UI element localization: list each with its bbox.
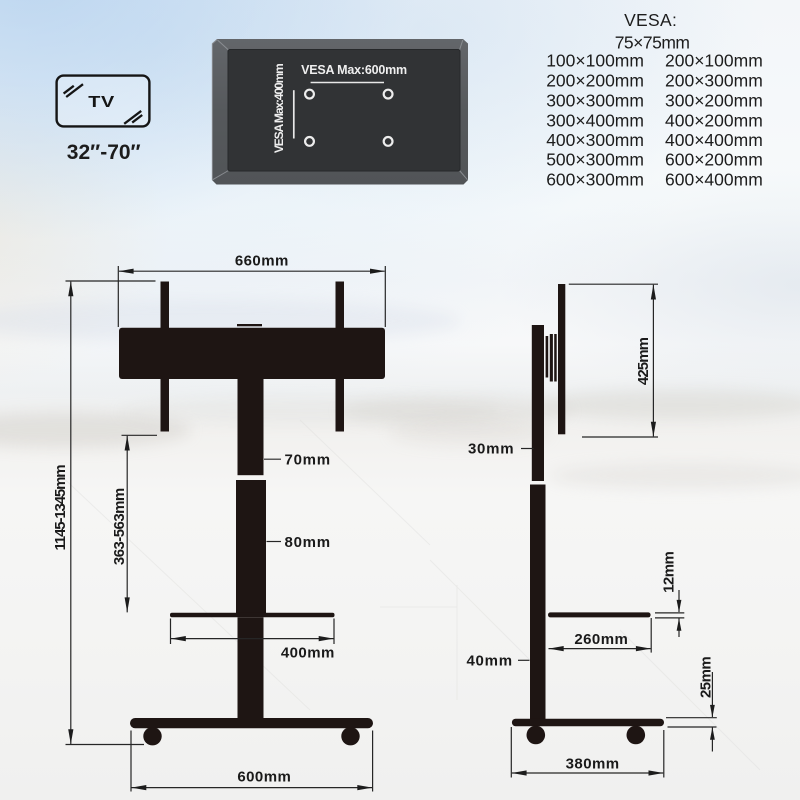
svg-text:80mm: 80mm — [285, 534, 331, 551]
svg-text:380mm: 380mm — [566, 756, 620, 773]
svg-text:400×200mm: 400×200mm — [665, 110, 763, 130]
svg-text:260mm: 260mm — [574, 631, 628, 648]
svg-text:100×100mm: 100×100mm — [546, 51, 644, 71]
svg-text:500×300mm: 500×300mm — [546, 150, 644, 170]
svg-text:400×300mm: 400×300mm — [546, 130, 644, 150]
svg-text:425mm: 425mm — [635, 337, 652, 385]
svg-text:1145-1345mm: 1145-1345mm — [52, 465, 69, 551]
svg-text:300×200mm: 300×200mm — [665, 91, 763, 111]
svg-text:VESA Max:600mm: VESA Max:600mm — [301, 63, 407, 77]
svg-text:363-563mm: 363-563mm — [111, 488, 128, 565]
svg-text:200×300mm: 200×300mm — [665, 71, 763, 91]
svg-text:TV: TV — [88, 93, 115, 111]
svg-text:70mm: 70mm — [285, 451, 331, 468]
svg-text:200×200mm: 200×200mm — [546, 71, 644, 91]
svg-text:VESA Max:400mm: VESA Max:400mm — [272, 64, 286, 153]
svg-text:660mm: 660mm — [235, 253, 289, 270]
svg-text:VESA:: VESA: — [624, 10, 677, 30]
svg-text:600×300mm: 600×300mm — [546, 170, 644, 190]
svg-text:75×75mm: 75×75mm — [615, 33, 690, 53]
svg-text:600×400mm: 600×400mm — [665, 170, 763, 190]
svg-text:400mm: 400mm — [281, 644, 335, 661]
svg-text:600×200mm: 600×200mm — [665, 150, 763, 170]
svg-text:40mm: 40mm — [466, 653, 512, 670]
svg-text:200×100mm: 200×100mm — [665, 51, 763, 71]
svg-text:300×400mm: 300×400mm — [546, 110, 644, 130]
svg-text:30mm: 30mm — [468, 441, 514, 458]
svg-text:300×300mm: 300×300mm — [546, 91, 644, 111]
svg-text:600mm: 600mm — [237, 768, 291, 785]
svg-text:32″-70″: 32″-70″ — [67, 141, 141, 164]
svg-text:400×400mm: 400×400mm — [665, 130, 763, 150]
svg-text:12mm: 12mm — [661, 552, 678, 593]
svg-text:25mm: 25mm — [698, 657, 715, 698]
